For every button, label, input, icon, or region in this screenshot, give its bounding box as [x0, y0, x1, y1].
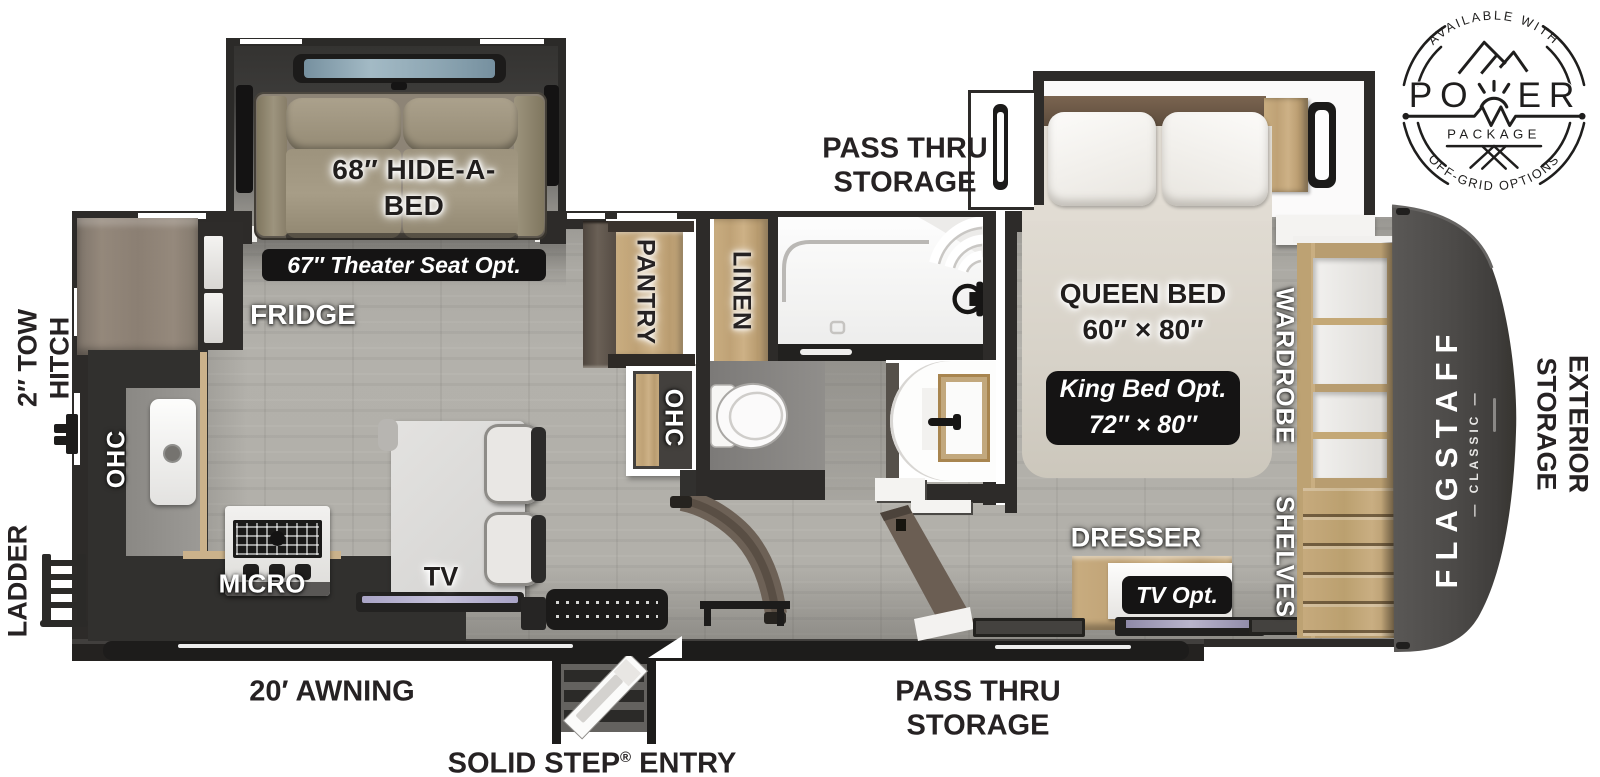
svg-text:PO: PO — [1409, 76, 1476, 115]
svg-text:AVAILABLE WITH: AVAILABLE WITH — [1425, 8, 1563, 48]
svg-text:PACKAGE: PACKAGE — [1447, 126, 1541, 141]
svg-text:ER: ER — [1518, 76, 1583, 115]
